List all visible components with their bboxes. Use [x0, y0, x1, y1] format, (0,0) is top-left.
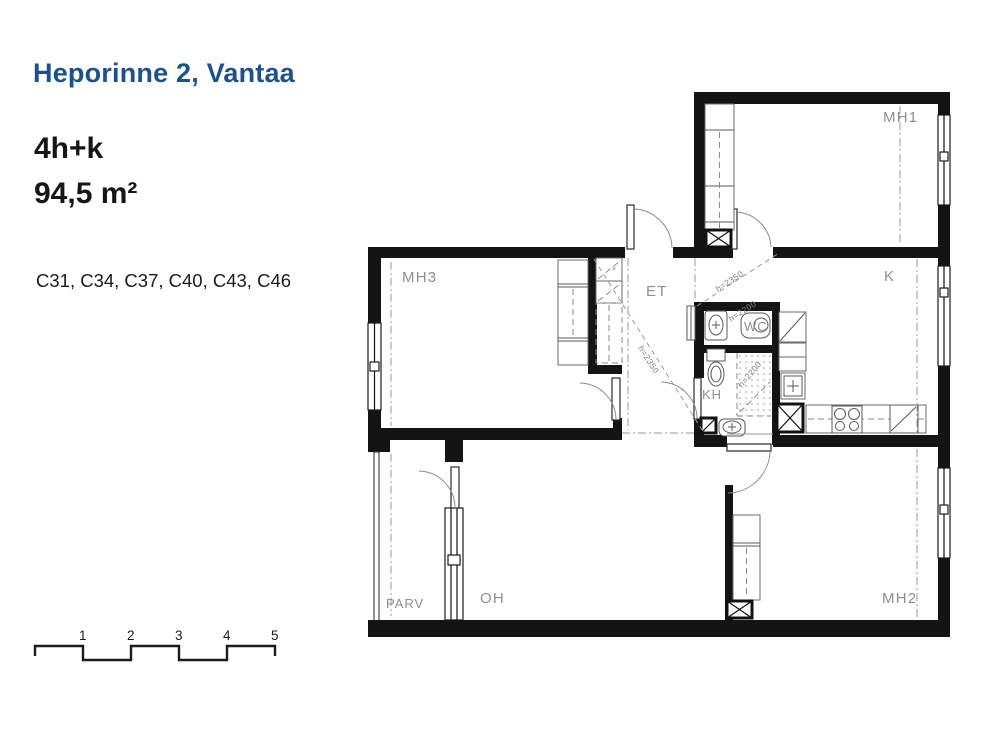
- mh2-door: [727, 444, 771, 493]
- pantry-cabinet: [779, 357, 806, 371]
- apartment-type: 4h+k: [34, 126, 137, 171]
- scale-number-3: 3: [175, 628, 183, 643]
- floor-plan-drawing: ×: [350, 80, 970, 660]
- room-label-k: K: [884, 268, 895, 285]
- mh2-wardrobe: [733, 515, 760, 600]
- scale-number-4: 4: [223, 628, 231, 643]
- floor-plan-sheet: Heporinne 2, Vantaa 4h+k 94,5 m² C31, C3…: [0, 0, 1000, 750]
- scale-bar-line: [35, 646, 275, 660]
- room-label-parv: PARV: [386, 596, 424, 611]
- apartment-numbers: C31, C34, C37, C40, C43, C46: [36, 270, 291, 292]
- mh3-wardrobe: [558, 260, 588, 365]
- room-label-mh3: MH3: [402, 269, 437, 286]
- scale-number-5: 5: [271, 628, 279, 643]
- et-closets: ×: [596, 258, 622, 363]
- balcony-railing: [374, 452, 380, 620]
- mh3-door: [580, 378, 620, 420]
- wc-sink: [705, 311, 727, 340]
- pantry-cabinet: [779, 343, 806, 357]
- room-labels: MH1 K MH3 ET KH OH PARV MH2 WC h=2350 h=…: [386, 109, 918, 611]
- mh1-door: [730, 209, 771, 249]
- room-label-mh2: MH2: [882, 590, 917, 607]
- shaft-mh2: [727, 601, 752, 618]
- scale-number-2: 2: [127, 628, 135, 643]
- page-title: Heporinne 2, Vantaa: [33, 58, 295, 89]
- stove: [832, 406, 862, 433]
- room-label-oh: OH: [480, 590, 505, 607]
- dishwasher: [890, 405, 918, 433]
- scale-bar: 1 2 3 4 5: [20, 615, 300, 675]
- window-mh1: [938, 115, 950, 205]
- entrance-door: [627, 205, 672, 249]
- window-kitchen: [938, 266, 950, 366]
- kitchen-sink-cabinet: [781, 373, 805, 399]
- shaft-kitchen: [777, 404, 803, 432]
- mh1-wardrobe: [705, 104, 734, 230]
- kh-door: [661, 378, 701, 419]
- shaft-mh1: [706, 230, 731, 247]
- height-label-corridor: h=2350: [714, 268, 745, 293]
- room-label-et: ET: [646, 283, 668, 300]
- kh-toilet: [707, 349, 725, 386]
- window-mh3: [368, 323, 381, 410]
- room-label-mh1: MH1: [883, 109, 918, 126]
- wc-sliding-door: [687, 306, 695, 340]
- scale-number-1: 1: [79, 628, 87, 643]
- window-balcony: [445, 508, 463, 620]
- apartment-info: 4h+k 94,5 m²: [34, 126, 137, 216]
- balcony-door: [419, 467, 459, 508]
- room-label-wc: WC: [744, 319, 768, 334]
- svg-text:×: ×: [612, 266, 616, 273]
- room-label-kh: KH: [702, 387, 722, 402]
- window-mh2: [938, 468, 950, 558]
- shaft-kh: [701, 418, 716, 433]
- fridge: [779, 312, 806, 342]
- apartment-area: 94,5 m²: [34, 171, 137, 216]
- kh-sink: [719, 419, 745, 436]
